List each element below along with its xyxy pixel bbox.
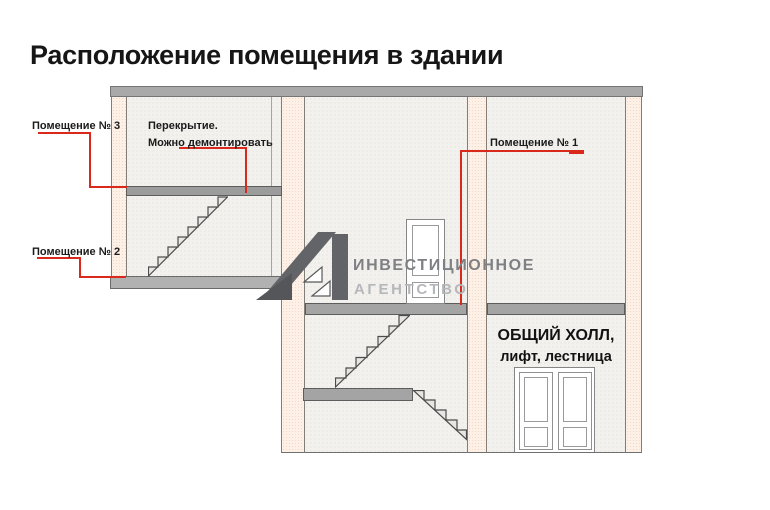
- building-section-diagram: Помещение № 3 Помещение № 2 Помещение № …: [0, 0, 770, 510]
- room3-callout-line: [89, 132, 91, 188]
- door-leaf-left: [519, 372, 553, 450]
- hall-double-door: [514, 367, 595, 452]
- leaf-panel: [563, 377, 587, 422]
- stair-landing-slab: [303, 388, 413, 401]
- room3-callout-line: [89, 186, 127, 188]
- logo-a1-icon: [256, 226, 356, 308]
- ceiling-note-line2: Можно демонтировать: [148, 135, 273, 152]
- hall-label-line2: лифт, лестница: [488, 347, 624, 368]
- door-leaf-right: [558, 372, 592, 450]
- room2-callout-line: [79, 257, 81, 278]
- roof-slab: [110, 86, 643, 97]
- stairs-upper-flight: [335, 315, 410, 388]
- leaf-panel: [563, 427, 587, 447]
- watermark: ИНВЕСТИЦИОННОЕ АГЕНТСТВО: [256, 226, 556, 310]
- leaf-panel: [524, 377, 548, 422]
- room1-callout-line: [569, 150, 584, 154]
- room1-label: Помещение № 1: [490, 136, 578, 150]
- removable-ceiling-slab: [126, 186, 282, 196]
- room1-callout-line: [461, 150, 583, 152]
- room2-label: Помещение № 2: [32, 245, 120, 259]
- page-title: Расположение помещения в здании: [30, 40, 503, 71]
- slide-page: Расположение помещения в здании: [0, 0, 770, 510]
- stairs-left-flight: [148, 196, 228, 277]
- hall-label-line1: ОБЩИЙ ХОЛЛ,: [488, 324, 624, 347]
- watermark-line1: ИНВЕСТИЦИОННОЕ: [353, 257, 535, 275]
- hall-label: ОБЩИЙ ХОЛЛ, лифт, лестница: [488, 324, 624, 368]
- room2-callout-line: [79, 276, 126, 278]
- ceiling-note-line1: Перекрытие.: [148, 118, 273, 135]
- leaf-panel: [524, 427, 548, 447]
- ceiling-callout-line: [245, 147, 247, 193]
- ceiling-note-label: Перекрытие. Можно демонтировать: [148, 118, 273, 152]
- watermark-line2: АГЕНТСТВО: [354, 281, 468, 298]
- room3-label: Помещение № 3: [32, 119, 120, 133]
- stairs-lower-flight: [413, 390, 467, 441]
- outer-wall-right: [625, 97, 642, 453]
